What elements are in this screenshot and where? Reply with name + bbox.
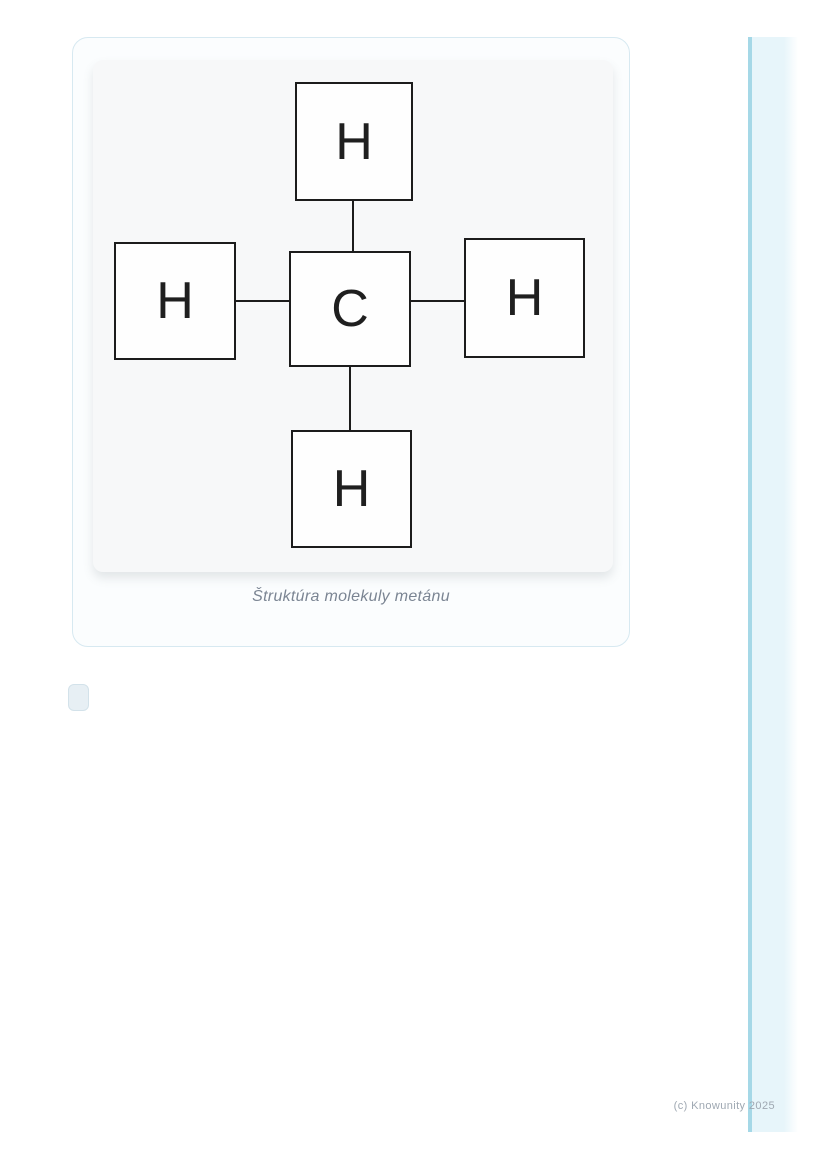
atom-box-hydrogen-bottom: H bbox=[291, 430, 412, 548]
bond-right bbox=[411, 300, 464, 302]
document-page: H H C H H Štruktúra molekuly metánu (c) … bbox=[0, 0, 828, 1171]
atom-label-hydrogen-right: H bbox=[506, 272, 544, 324]
atom-box-hydrogen-top: H bbox=[295, 82, 413, 201]
bond-left bbox=[236, 300, 289, 302]
atom-label-hydrogen-left: H bbox=[156, 275, 194, 327]
bond-bottom bbox=[349, 367, 351, 430]
copyright-text: (c) Knowunity 2025 bbox=[674, 1100, 775, 1112]
atom-label-hydrogen-top: H bbox=[335, 116, 373, 168]
page-edge-line bbox=[748, 37, 752, 1132]
bond-top bbox=[352, 201, 354, 251]
atom-box-hydrogen-left: H bbox=[114, 242, 236, 360]
page-edge-bar bbox=[748, 37, 798, 1132]
atom-box-carbon: C bbox=[289, 251, 411, 367]
atom-label-hydrogen-bottom: H bbox=[333, 463, 371, 515]
molecule-diagram: H H C H H bbox=[93, 60, 613, 572]
figure-caption: Štruktúra molekuly metánu bbox=[73, 588, 629, 606]
empty-checkbox[interactable] bbox=[68, 684, 89, 711]
atom-label-carbon: C bbox=[331, 283, 369, 335]
atom-box-hydrogen-right: H bbox=[464, 238, 585, 358]
figure-card: H H C H H Štruktúra molekuly metánu bbox=[72, 37, 630, 647]
